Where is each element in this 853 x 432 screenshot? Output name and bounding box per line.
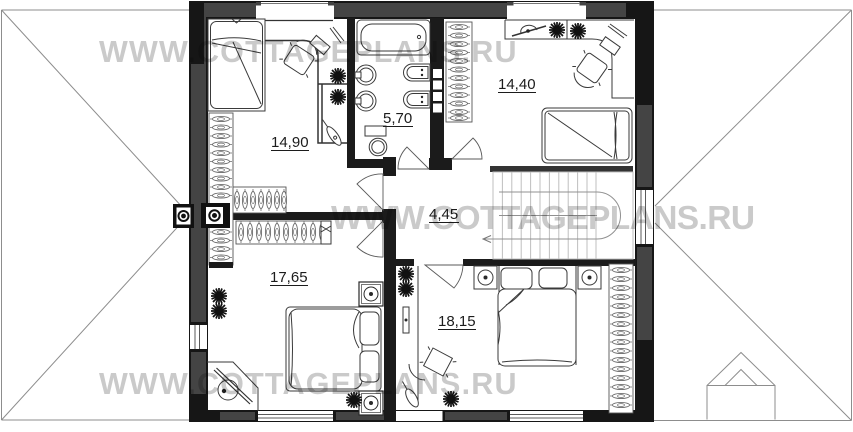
svg-text:18,15: 18,15 bbox=[438, 313, 476, 330]
svg-text:WWW.COTTAGEPLANS.RU: WWW.COTTAGEPLANS.RU bbox=[99, 35, 518, 69]
svg-text:WWW.COTTAGEPLANS.RU: WWW.COTTAGEPLANS.RU bbox=[99, 367, 518, 401]
svg-text:17,65: 17,65 bbox=[270, 269, 308, 286]
svg-text:5,70: 5,70 bbox=[383, 110, 412, 127]
svg-text:WWW.COTTAGEPLANS.RU: WWW.COTTAGEPLANS.RU bbox=[331, 200, 754, 237]
svg-text:14,40: 14,40 bbox=[498, 76, 536, 93]
svg-text:14,90: 14,90 bbox=[271, 134, 309, 151]
